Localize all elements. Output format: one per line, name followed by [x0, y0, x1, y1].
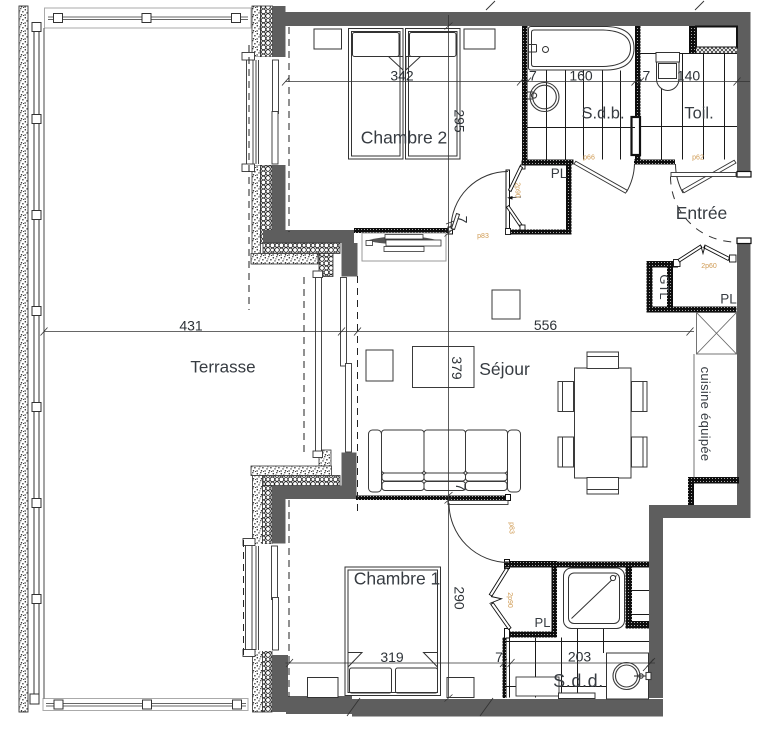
svg-text:Chambre 1: Chambre 1	[354, 569, 441, 589]
svg-text:Terrasse: Terrasse	[190, 358, 255, 377]
svg-text:556: 556	[534, 317, 558, 333]
svg-text:S.d.b.: S.d.b.	[581, 105, 624, 123]
svg-text:p83: p83	[508, 522, 515, 534]
svg-text:Entrée: Entrée	[676, 203, 728, 223]
svg-text:7: 7	[453, 483, 469, 491]
svg-text:379: 379	[449, 356, 465, 380]
svg-text:2p60: 2p60	[701, 263, 717, 270]
svg-text:7: 7	[455, 216, 471, 224]
svg-text:342: 342	[390, 68, 414, 84]
svg-text:140: 140	[677, 68, 701, 84]
svg-text:203: 203	[568, 649, 592, 665]
svg-text:p66: p66	[583, 155, 595, 162]
svg-text:p62: p62	[692, 155, 704, 162]
svg-text:2p90: 2p90	[514, 182, 521, 198]
svg-text:160: 160	[569, 68, 593, 84]
svg-text:,7: ,7	[525, 68, 537, 84]
svg-text:290: 290	[452, 586, 468, 610]
svg-text:Chambre 2: Chambre 2	[361, 128, 448, 148]
svg-text:319: 319	[380, 649, 404, 665]
svg-text:2p90: 2p90	[506, 592, 513, 608]
svg-text:7: 7	[495, 649, 503, 665]
svg-text:,7: ,7	[639, 68, 651, 84]
svg-text:PL: PL	[720, 292, 737, 307]
svg-text:GTL: GTL	[657, 274, 672, 299]
svg-text:Séjour: Séjour	[479, 359, 530, 379]
svg-text:p83: p83	[477, 233, 489, 240]
svg-text:Toil.: Toil.	[684, 105, 713, 123]
svg-text:295: 295	[452, 109, 468, 133]
svg-text:PL: PL	[551, 166, 568, 181]
svg-text:S.d.d.: S.d.d.	[553, 671, 604, 691]
svg-text:431: 431	[179, 318, 203, 334]
svg-text:PL: PL	[535, 615, 551, 630]
svg-text:cuisine équipée: cuisine équipée	[698, 367, 713, 462]
